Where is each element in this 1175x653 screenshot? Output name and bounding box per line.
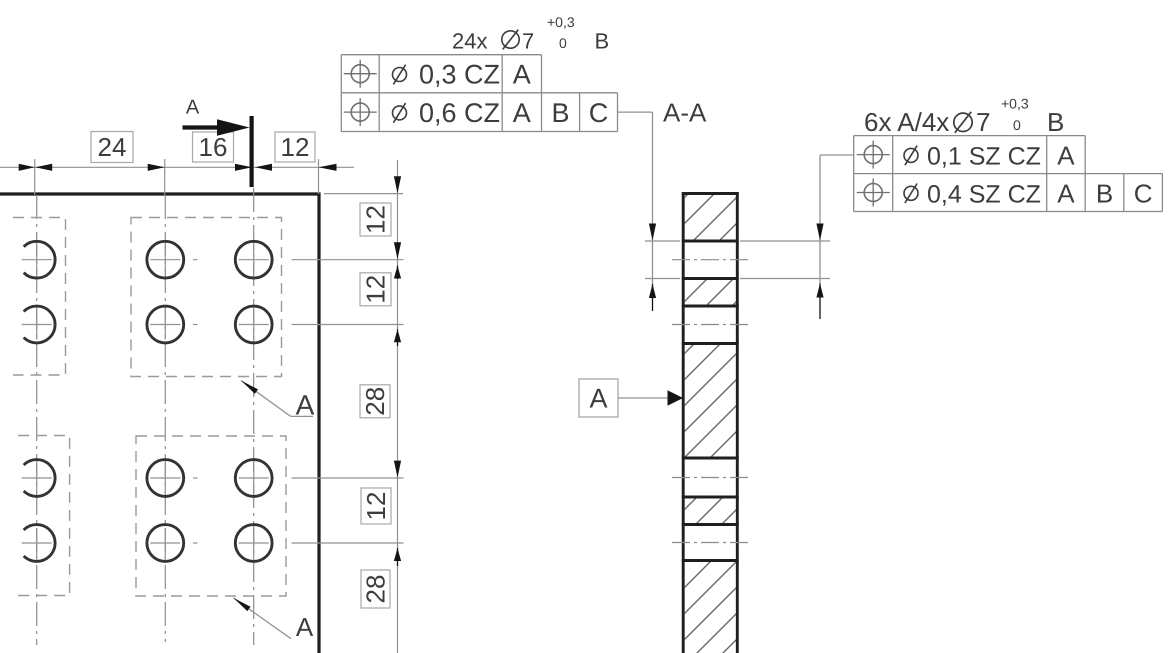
svg-text:B: B (1047, 107, 1064, 137)
svg-text:0: 0 (559, 35, 567, 51)
svg-text:A: A (186, 97, 200, 119)
svg-text:12: 12 (361, 205, 391, 234)
svg-text:A: A (296, 390, 315, 421)
svg-text:0,1 SZ CZ: 0,1 SZ CZ (927, 142, 1041, 170)
svg-text:A: A (1057, 178, 1075, 208)
svg-text:A: A (1057, 140, 1075, 170)
svg-text:+0,3: +0,3 (547, 14, 575, 30)
svg-text:B: B (1096, 178, 1113, 208)
svg-text:7: 7 (976, 107, 990, 137)
svg-text:6x A/4x: 6x A/4x (864, 107, 949, 137)
svg-text:28: 28 (360, 387, 390, 416)
svg-text:16: 16 (199, 132, 228, 162)
svg-text:A: A (589, 384, 607, 414)
svg-text:0,3 CZ: 0,3 CZ (419, 60, 500, 90)
svg-text:12: 12 (361, 492, 391, 521)
svg-text:C: C (589, 98, 609, 128)
svg-text:12: 12 (281, 132, 310, 162)
svg-text:B: B (551, 98, 569, 128)
svg-text:B: B (595, 28, 610, 53)
svg-text:7: 7 (522, 28, 534, 53)
svg-text:C: C (1134, 178, 1153, 208)
svg-text:A: A (513, 60, 531, 90)
svg-text:12: 12 (361, 275, 391, 304)
svg-text:24x: 24x (452, 29, 487, 54)
svg-text:0: 0 (1013, 117, 1021, 133)
svg-text:A-A: A-A (663, 98, 707, 128)
svg-text:28: 28 (361, 575, 391, 604)
svg-text:A: A (513, 98, 531, 128)
svg-text:A: A (296, 612, 314, 642)
svg-text:0,6 CZ: 0,6 CZ (419, 98, 500, 128)
svg-text:+0,3: +0,3 (1001, 95, 1029, 111)
svg-text:24: 24 (98, 132, 127, 162)
svg-text:0,4 SZ CZ: 0,4 SZ CZ (927, 180, 1041, 208)
